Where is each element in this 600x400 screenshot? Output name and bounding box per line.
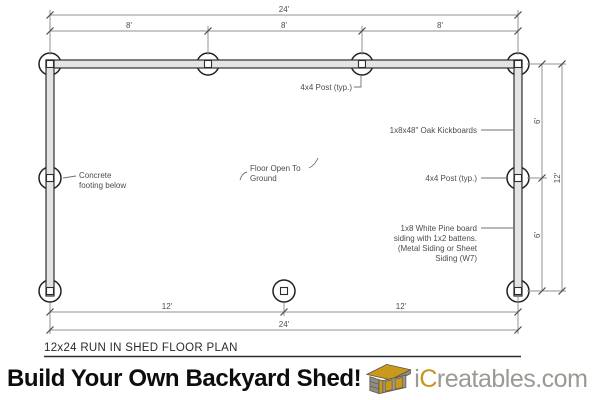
label-post-right: 4x4 Post (typ.) [425, 174, 477, 183]
post [47, 288, 54, 295]
leader-floor-right [309, 158, 318, 168]
shed-plan-page: 24' 8' 8' 8' 6' [0, 0, 600, 400]
label-kickboards: 1x8x48" Oak Kickboards [390, 126, 477, 135]
shed-logo-icon [366, 360, 412, 398]
label-siding-line-3: (Metal Siding or Sheet [398, 244, 478, 253]
label-floor-line-1: Floor Open To [250, 164, 301, 173]
floor-plan-drawing: 24' 8' 8' 8' 6' [0, 0, 600, 358]
post [515, 288, 522, 295]
dim-right-seg-1: 6' [533, 118, 542, 124]
post [47, 175, 54, 182]
plan-title: 12x24 RUN IN SHED FLOOR PLAN [44, 342, 238, 354]
post [515, 61, 522, 68]
dim-top-seg-2: 8' [281, 21, 287, 30]
dim-right-total: 12' [553, 172, 562, 183]
post [359, 61, 366, 68]
leader-floor-left [240, 172, 247, 180]
top-dimensions: 24' 8' 8' 8' [47, 5, 522, 55]
label-footing-line-2: footing below [79, 181, 126, 190]
leader-lines [63, 76, 513, 228]
label-siding-line-4: Siding (W7) [435, 254, 477, 263]
dim-top-seg-3: 8' [437, 21, 443, 30]
label-footing-line-1: Concrete [79, 171, 112, 180]
annotation-labels: 4x4 Post (typ.) 1x8x48" Oak Kickboards 4… [79, 83, 478, 263]
label-siding-line-2: siding with 1x2 battens. [394, 234, 477, 243]
brand-text: iCreatables.com [414, 365, 587, 394]
post [205, 61, 212, 68]
brand-letter-c: C [419, 365, 437, 393]
promo-headline: Build Your Own Backyard Shed! [7, 365, 361, 393]
promo-banner: Build Your Own Backyard Shed! iCreatable… [0, 358, 600, 400]
dim-right-seg-2: 6' [533, 232, 542, 238]
label-post-top: 4x4 Post (typ.) [300, 83, 352, 92]
leader-post-top [354, 76, 361, 87]
post [281, 288, 288, 295]
dim-top-seg-1: 8' [126, 21, 132, 30]
top-wall [46, 60, 522, 68]
post [47, 61, 54, 68]
dim-bottom-seg-1: 12' [162, 302, 173, 311]
leader-footing [63, 176, 76, 178]
dim-top-total: 24' [279, 5, 290, 14]
brand-rest: reatables.com [437, 365, 588, 393]
dim-bottom-seg-2: 12' [396, 302, 407, 311]
dim-bottom-total: 24' [279, 320, 290, 329]
label-siding-line-1: 1x8 White Pine board [401, 224, 478, 233]
label-floor-line-2: Ground [250, 174, 277, 183]
post [515, 175, 522, 182]
right-dimensions: 6' 6' 12' [527, 61, 566, 295]
